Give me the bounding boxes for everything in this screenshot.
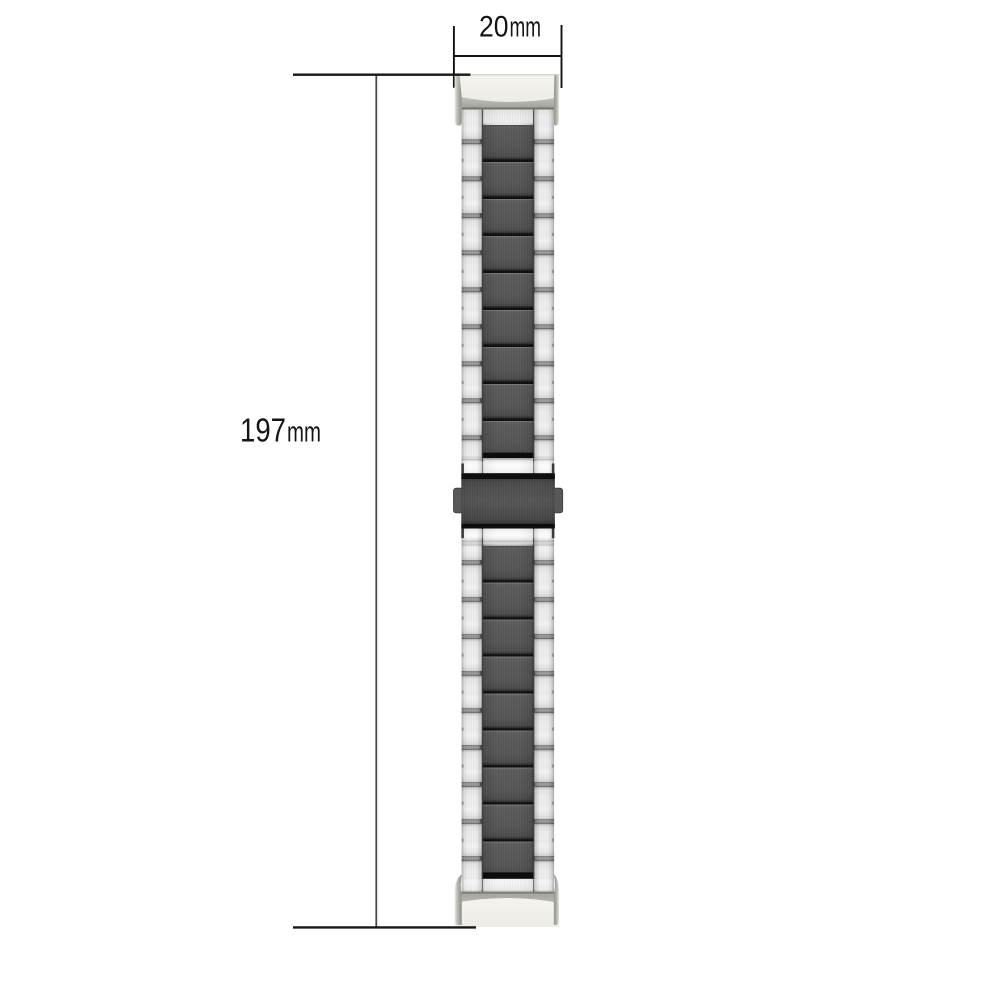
svg-text:mm: mm [510, 11, 542, 43]
svg-text:mm: mm [287, 416, 321, 448]
svg-text:20: 20 [479, 11, 509, 43]
svg-text:197: 197 [240, 411, 286, 448]
